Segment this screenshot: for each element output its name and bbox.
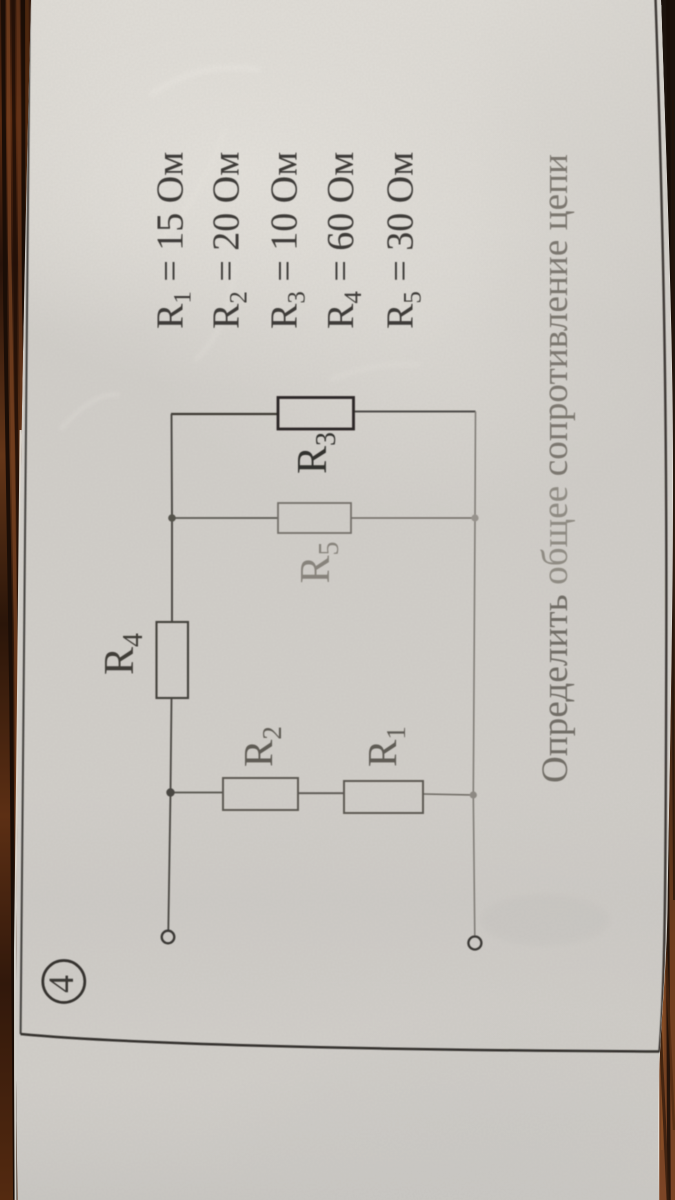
svg-text:4: 4 (41, 975, 81, 993)
svg-text:Определить общее сопротивление: Определить общее сопротивление цепи (535, 154, 576, 783)
